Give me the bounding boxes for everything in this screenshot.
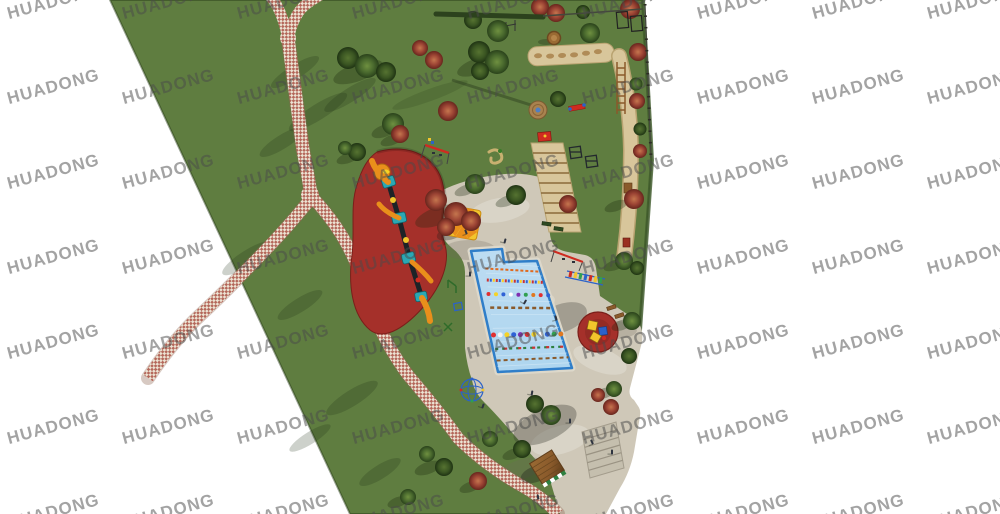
stairs <box>582 422 624 478</box>
balance-log-pit <box>528 43 615 66</box>
spinner-circle <box>578 312 618 352</box>
red-play-box <box>538 131 552 141</box>
park-plan-rendering: HUADONGHUADONGHUADONGHUADONGHUADONGHUADO… <box>0 0 1000 514</box>
site-plan-canvas <box>0 0 1000 514</box>
top-hedge <box>436 14 543 17</box>
